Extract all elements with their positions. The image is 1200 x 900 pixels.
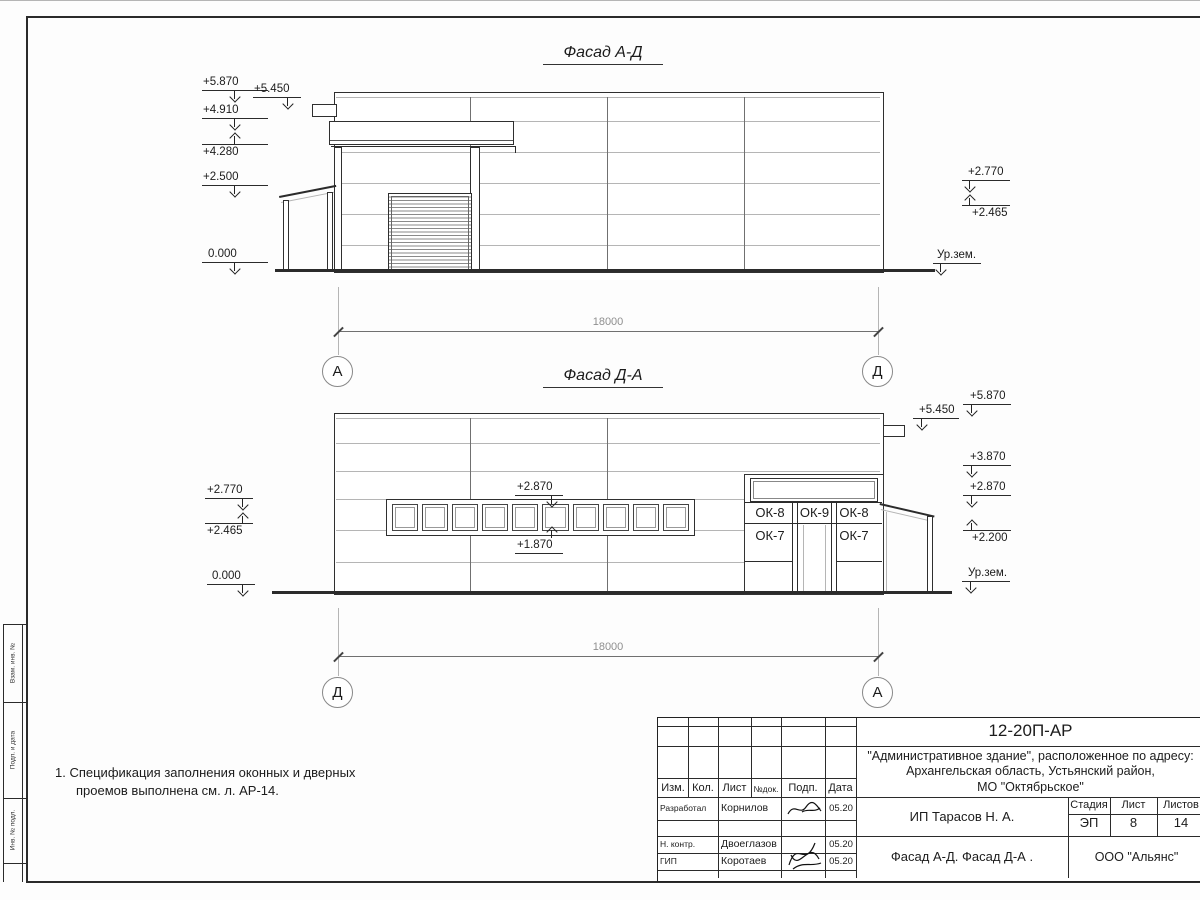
frame-line-left — [26, 16, 28, 883]
stamp-col-header: №док. — [751, 784, 781, 794]
canopy-fascia — [329, 121, 514, 145]
window — [633, 504, 659, 531]
doc-number: 12-20П-АР — [856, 721, 1200, 745]
level-arrow-icon — [229, 263, 240, 276]
facade-da-title: Фасад Д-А — [543, 367, 663, 388]
window — [512, 504, 538, 531]
note-line: 1. Спецификация заполнения оконных и две… — [55, 765, 355, 780]
stamp-date: 05.20 — [826, 839, 856, 850]
ground-line — [275, 269, 935, 272]
portal-post-left — [334, 147, 342, 272]
level-arrow-icon — [966, 496, 977, 509]
level-text: 0.000 — [208, 248, 237, 260]
stamp-line — [658, 853, 856, 854]
window-tag: ОК-7 — [832, 528, 876, 543]
extension-line — [878, 608, 879, 676]
sheet-number: 8 — [1110, 815, 1157, 836]
dimension-line — [338, 331, 879, 332]
strip-divider — [3, 798, 27, 799]
signature — [783, 833, 825, 875]
strip-label: Подп. и дата — [10, 731, 17, 769]
level-arrow-icon — [966, 405, 977, 418]
strip-divider — [3, 863, 27, 864]
dimension-line — [338, 656, 879, 657]
window — [573, 504, 599, 531]
window — [422, 504, 448, 531]
level-line — [962, 205, 1010, 206]
level-arrow-icon — [935, 264, 946, 277]
leanto-post — [886, 512, 887, 592]
level-text: +3.870 — [970, 451, 1006, 463]
stage-label: Стадия — [1068, 799, 1110, 814]
level-arrow-icon — [966, 466, 977, 479]
level-arrow-icon — [229, 131, 240, 144]
column-line — [607, 97, 608, 270]
project-address: Архангельская область, Устьянский район, — [856, 764, 1200, 779]
note-line: проемов выполнена см. л. АР-14. — [76, 783, 279, 798]
level-text: +4.280 — [203, 146, 239, 158]
canopy-edge-line — [515, 146, 516, 153]
window — [482, 504, 508, 531]
window — [663, 504, 689, 531]
strip-divider — [3, 624, 27, 625]
leanto-post — [283, 200, 289, 272]
siding-line — [336, 183, 880, 184]
parapet-line — [336, 97, 880, 98]
axis-circle: А — [322, 356, 353, 387]
level-text: +5.450 — [919, 404, 955, 416]
level-text: +1.870 — [517, 539, 553, 551]
extension-line — [878, 287, 879, 355]
project-address: МО "Октябрьское" — [856, 780, 1200, 795]
level-text: +5.870 — [970, 390, 1006, 402]
level-text: +2.500 — [203, 171, 239, 183]
level-text: +2.465 — [207, 525, 243, 537]
client-name: ИП Тарасов Н. А. — [856, 797, 1068, 836]
stamp-line — [658, 820, 856, 821]
sheet-edge-line — [0, 0, 1200, 1]
level-text: +4.910 — [203, 104, 239, 116]
dimension-label: 18000 — [579, 641, 637, 653]
level-text: +2.770 — [968, 166, 1004, 178]
level-line — [205, 523, 253, 524]
level-text: +2.200 — [972, 532, 1008, 544]
strip-label: Инв. № подл. — [10, 810, 17, 851]
sheet-title: Фасад А-Д. Фасад Д-А . — [856, 836, 1068, 878]
facade-ad-title: Фасад А-Д — [543, 44, 663, 65]
stamp-col-header: Дата — [825, 782, 856, 794]
axis-circle: Д — [862, 356, 893, 387]
window — [452, 504, 478, 531]
sill-line — [836, 561, 882, 562]
stamp-col-header: Кол. — [688, 782, 718, 794]
stamp-col-header: Лист — [718, 782, 751, 794]
axis-circle: А — [862, 677, 893, 708]
window-tag: ОК-7 — [748, 528, 792, 543]
canopy-soffit-line — [331, 146, 516, 147]
stamp-name: Двоеглазов — [721, 838, 777, 850]
level-arrow-icon — [546, 496, 557, 509]
stamp-name: Коротаев — [721, 855, 766, 867]
organization: ООО "Альянс" — [1068, 836, 1200, 878]
window — [603, 504, 629, 531]
stamp-line — [658, 746, 1200, 747]
leanto-post — [927, 516, 933, 594]
sheets-total: 14 — [1157, 815, 1200, 836]
level-text: +2.770 — [207, 484, 243, 496]
stage-value: ЭП — [1068, 815, 1110, 836]
level-arrow-icon — [229, 91, 240, 104]
extension-line — [338, 287, 339, 355]
stamp-date: 05.20 — [826, 856, 856, 867]
siding-line — [336, 443, 880, 444]
strip-inner-line — [22, 624, 23, 882]
level-line — [202, 144, 268, 145]
level-text: +2.870 — [517, 481, 553, 493]
stamp-date: 05.20 — [826, 803, 856, 814]
ground-level-text: Ур.зем. — [968, 567, 1007, 579]
sheets-label: Листов — [1157, 799, 1200, 814]
level-arrow-icon — [229, 186, 240, 199]
level-line — [515, 553, 563, 554]
level-text: +5.870 — [203, 76, 239, 88]
roller-door — [388, 193, 472, 273]
siding-line — [336, 471, 880, 472]
level-line — [253, 97, 301, 98]
level-arrow-icon — [916, 419, 927, 432]
level-arrow-icon — [546, 525, 557, 538]
column-line — [744, 97, 745, 270]
drawing-sheet: Взам. инв. № Подп. и дата Инв. № подл. Ф… — [0, 0, 1200, 900]
level-text: 0.000 — [212, 570, 241, 582]
stamp-line — [658, 726, 856, 727]
dimension-label: 18000 — [579, 316, 637, 328]
door-leaf-line — [825, 525, 826, 591]
ground-line — [272, 591, 952, 594]
ground-level-text: Ур.зем. — [937, 249, 976, 261]
mullion-line — [745, 502, 882, 503]
window-tag: ОК-8 — [832, 505, 876, 520]
project-address: "Административное здание", расположенное… — [856, 749, 1200, 764]
strip-outer-line — [3, 624, 4, 882]
mullion-line — [745, 523, 882, 524]
stamp-line — [658, 870, 856, 871]
stamp-col-header: Подп. — [781, 782, 825, 794]
transom-window — [750, 478, 878, 502]
level-text: +2.465 — [972, 207, 1008, 219]
strip-divider — [3, 702, 27, 703]
stamp-line — [825, 718, 826, 878]
stamp-role: Н. контр. — [660, 839, 695, 849]
roof-vent — [312, 104, 337, 117]
window-band — [386, 499, 695, 536]
window-tag: ОК-9 — [793, 505, 836, 520]
parapet-line — [336, 418, 880, 419]
strip-label: Взам. инв. № — [10, 643, 17, 683]
stamp-line — [718, 718, 719, 878]
level-line — [963, 530, 1011, 531]
stamp-line — [658, 778, 856, 779]
leanto-post — [327, 192, 333, 272]
axis-circle: Д — [322, 677, 353, 708]
stamp-name: Корнилов — [721, 802, 768, 814]
stamp-line — [781, 718, 782, 878]
level-text: +5.450 — [254, 83, 290, 95]
sill-line — [745, 561, 792, 562]
stamp-role: Разработал — [660, 803, 706, 813]
siding-line — [336, 152, 880, 153]
window-tag: ОК-8 — [748, 505, 792, 520]
window — [392, 504, 418, 531]
level-arrow-icon — [237, 585, 248, 598]
door-leaf-line — [803, 525, 804, 591]
frame-line-top — [26, 16, 1200, 18]
level-arrow-icon — [965, 582, 976, 595]
level-arrow-icon — [282, 98, 293, 111]
extension-line — [338, 608, 339, 676]
sheet-label: Лист — [1110, 799, 1157, 814]
signature — [784, 799, 824, 819]
stamp-col-header: Изм. — [658, 782, 688, 794]
stamp-role: ГИП — [660, 856, 677, 866]
level-text: +2.870 — [970, 481, 1006, 493]
roof-vent — [883, 425, 905, 437]
